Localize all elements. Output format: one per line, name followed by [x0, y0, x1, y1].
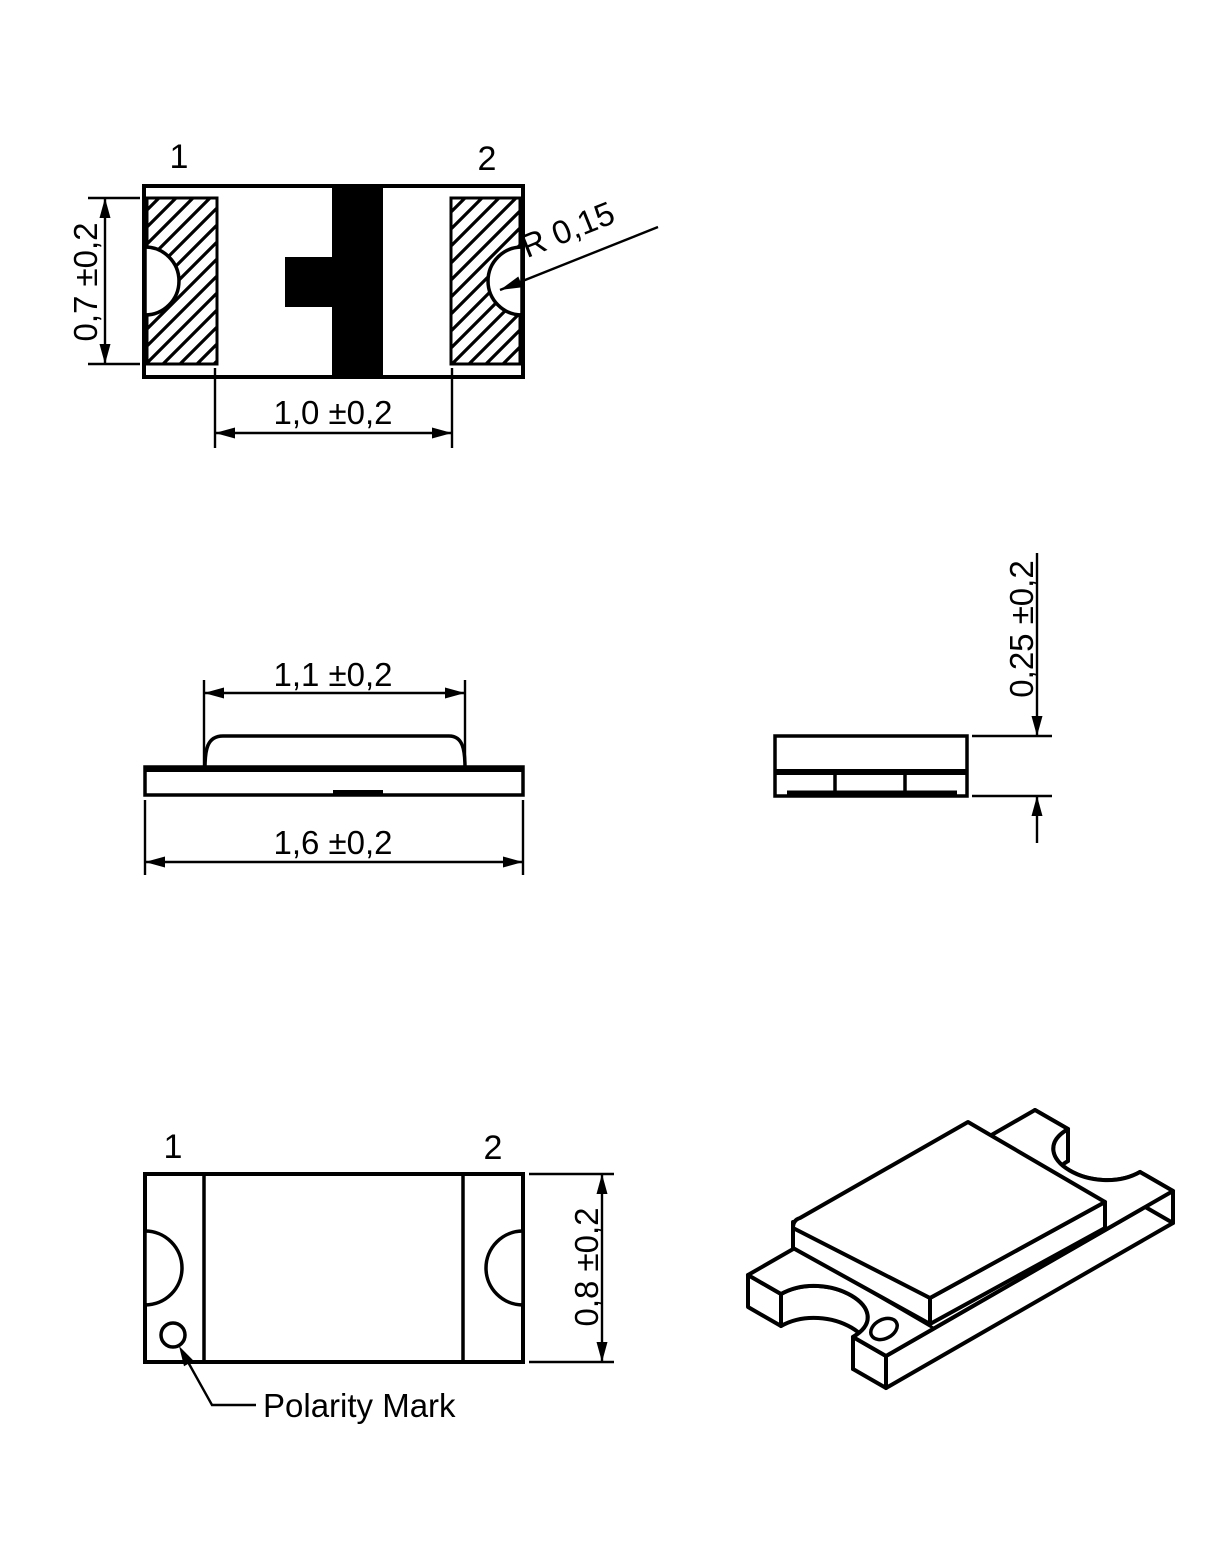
dim-notch-radius-text: R 0,15 — [516, 194, 620, 265]
bottom-view-pin1-label: 1 — [164, 1128, 183, 1166]
arrowhead-left — [204, 688, 224, 699]
dim-pad-height-text: 0,7 ±0,2 — [67, 222, 104, 341]
top-view-pin1-label: 1 — [170, 138, 189, 176]
arrowhead-up — [100, 198, 111, 218]
engineering-drawing-page: 1 2 0,7 ±0,2 1,0 ±0,2 R 0,15 — [0, 0, 1229, 1558]
arrowhead-left — [145, 857, 165, 868]
end-view-bottom-contact — [787, 791, 957, 797]
dim-thickness: 0,25 ±0,2 — [972, 553, 1052, 843]
isometric-view — [748, 1110, 1173, 1388]
arrowhead-up — [597, 1174, 608, 1194]
end-view-outline — [775, 736, 967, 796]
bottom-view: 1 2 Polarity Mark 0,8 ±0,2 — [145, 1128, 614, 1424]
bottom-view-outline — [145, 1174, 523, 1362]
arrowhead-right — [432, 428, 452, 439]
dim-lens-length-text: 1,1 ±0,2 — [273, 656, 392, 693]
dim-body-length-text: 1,6 ±0,2 — [273, 824, 392, 861]
end-view: 0,25 ±0,2 — [775, 553, 1052, 843]
smd-led-package-drawing: 1 2 0,7 ±0,2 1,0 ±0,2 R 0,15 — [0, 0, 1229, 1558]
side-view: 1,1 ±0,2 1,6 ±0,2 — [145, 656, 523, 875]
top-view-pin2-label: 2 — [478, 140, 497, 178]
dim-pad-height: 0,7 ±0,2 — [67, 198, 140, 364]
cathode-mark-tab — [285, 257, 332, 307]
dim-body-width-text: 0,8 ±0,2 — [568, 1207, 605, 1326]
bottom-contact-tick — [333, 790, 383, 796]
arrowhead-down — [100, 344, 111, 364]
arrowhead-up — [1032, 796, 1043, 816]
cathode-mark-bar — [332, 186, 383, 377]
polarity-mark-text: Polarity Mark — [263, 1387, 456, 1424]
arrowhead-right — [445, 688, 465, 699]
arrowhead-down — [1032, 716, 1043, 736]
arrowhead-left — [215, 428, 235, 439]
bottom-view-pin2-label: 2 — [484, 1129, 503, 1167]
top-view: 1 2 0,7 ±0,2 1,0 ±0,2 R 0,15 — [67, 138, 658, 448]
arrowhead-right — [503, 857, 523, 868]
polarity-mark-circle — [161, 1323, 185, 1347]
leader-line — [188, 1362, 256, 1405]
dim-pad-gap-text: 1,0 ±0,2 — [273, 394, 392, 431]
lens-dome-profile — [205, 736, 465, 768]
dim-thickness-text: 0,25 ±0,2 — [1003, 560, 1040, 697]
dim-body-width: 0,8 ±0,2 — [529, 1174, 614, 1362]
arrowhead-down — [597, 1342, 608, 1362]
dim-pad-gap: 1,0 ±0,2 — [215, 368, 452, 448]
dim-body-length: 1,6 ±0,2 — [145, 800, 523, 875]
